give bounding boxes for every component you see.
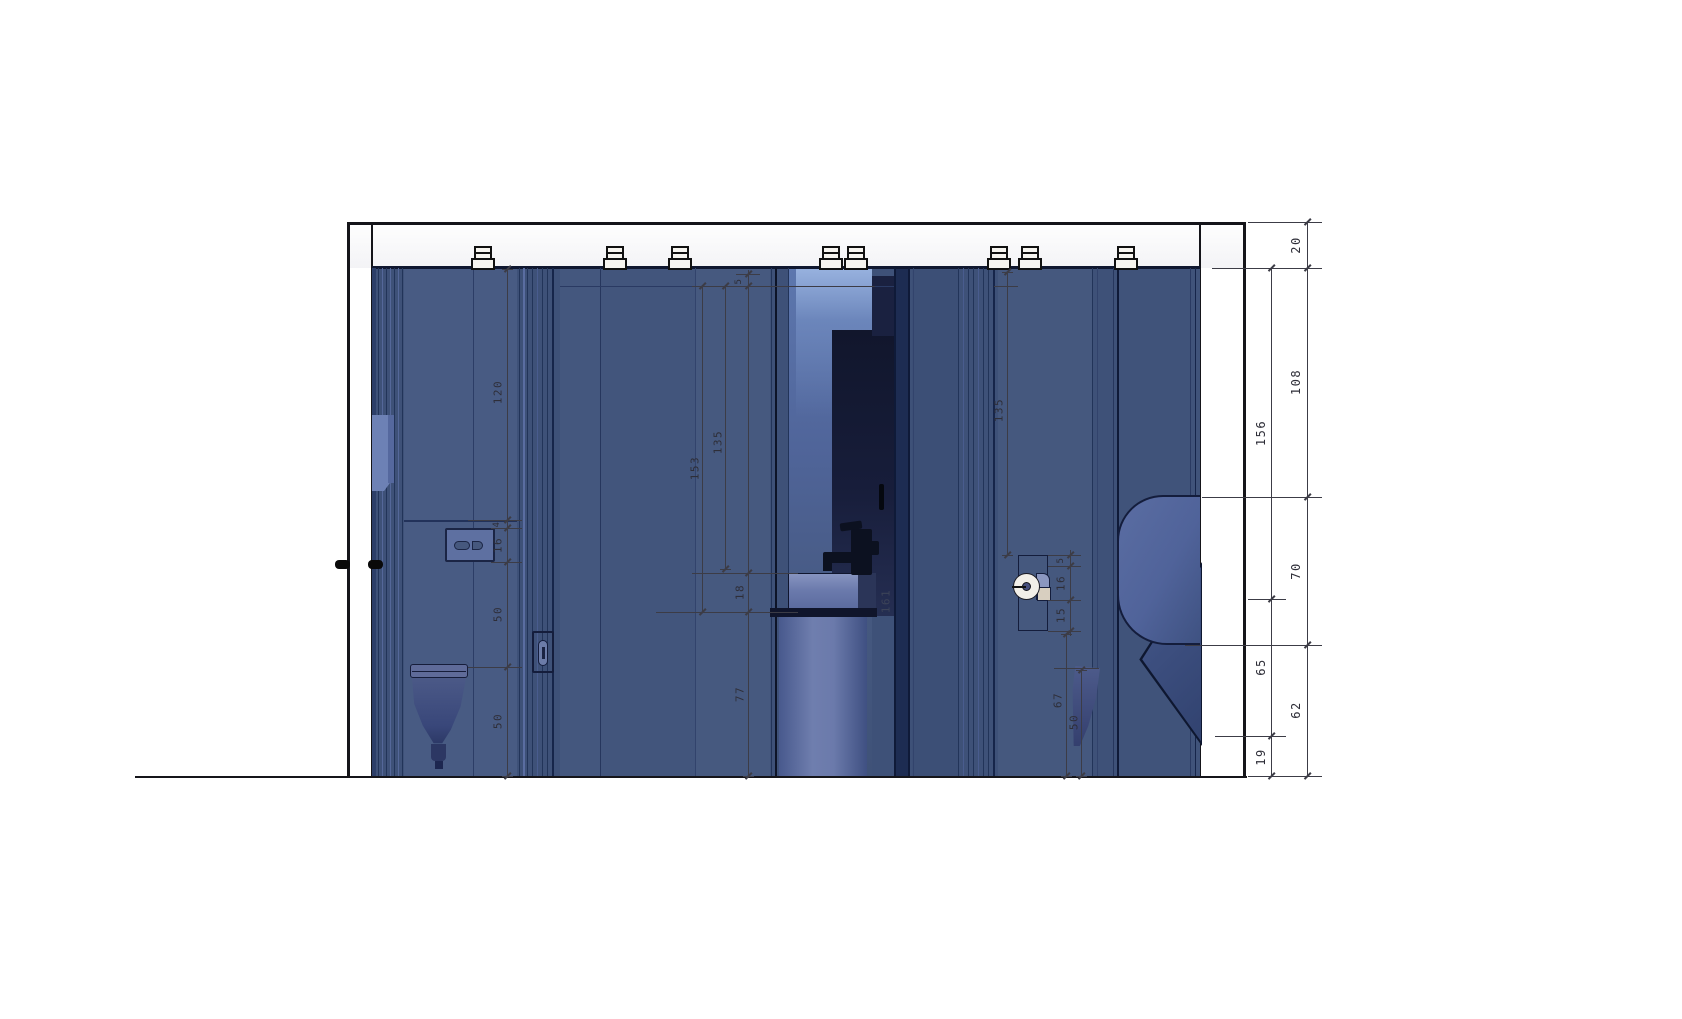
seam-line <box>390 268 391 776</box>
dim-ext <box>692 286 875 287</box>
dim-label: 19 <box>1254 748 1268 765</box>
seam-line <box>398 268 399 776</box>
stall-divider-seam <box>978 268 979 776</box>
dim-line-67 <box>1066 634 1067 776</box>
ceiling-spotlight-icon <box>844 246 866 268</box>
dim-ext <box>1054 668 1099 669</box>
stall-divider-seam <box>519 268 520 776</box>
panel-left-of-door <box>560 268 600 776</box>
middle-door-panel <box>600 268 695 776</box>
dim-ext <box>692 573 798 574</box>
seam-line <box>386 268 387 776</box>
dim-label: 50 <box>1068 714 1081 730</box>
ceiling-spotlight-icon <box>471 246 493 268</box>
mirror-edge-line <box>894 268 896 776</box>
dim-ext <box>1215 736 1286 737</box>
seam-line <box>378 268 379 776</box>
seam-line <box>382 268 383 776</box>
stall-divider-seam <box>983 268 984 776</box>
dim-ext <box>1202 497 1322 498</box>
seam-line <box>775 268 777 776</box>
flush-button-large <box>454 541 470 550</box>
stall-divider-seam <box>993 268 995 776</box>
panel-right-of-door <box>912 268 958 776</box>
ceiling-spotlight-icon <box>1114 246 1136 268</box>
seam-line <box>402 268 403 776</box>
ceiling-spotlight-icon <box>987 246 1009 268</box>
toilet-rim-line <box>412 671 466 672</box>
seam-line <box>771 268 772 776</box>
dim-label: 70 <box>1289 562 1303 579</box>
dim-label: 161 <box>880 589 893 613</box>
dim-label: 50 <box>492 606 505 622</box>
stall-divider-seam <box>527 268 528 776</box>
dim-ext <box>1248 776 1322 777</box>
dim-label: 16 <box>492 537 505 553</box>
seam-line <box>695 268 696 776</box>
door-handle-outer <box>335 560 350 569</box>
dim-ext <box>1048 566 1081 567</box>
stall-divider-seam <box>988 268 989 776</box>
stall-divider-seam <box>537 268 538 776</box>
dim-chain-outer <box>1307 222 1308 777</box>
dim-label: 135 <box>712 430 725 454</box>
middle-door-panel-2 <box>695 268 770 776</box>
right-wall-outer-line <box>1243 222 1246 777</box>
urinal <box>1117 495 1200 645</box>
stall-divider-seam <box>547 268 548 776</box>
ceiling-spotlight-icon <box>819 246 841 268</box>
stall-divider-seam <box>542 268 543 776</box>
stall-divider-seam <box>973 268 974 776</box>
dim-ext <box>1048 600 1081 601</box>
flush-button-small <box>472 541 483 550</box>
ceiling-line <box>372 266 1200 269</box>
stall-divider-seam <box>968 268 969 776</box>
toilet-foot <box>431 744 446 761</box>
dim-line-50-right <box>1081 670 1082 776</box>
dim-label: 156 <box>1254 420 1268 446</box>
seam-line <box>372 268 376 776</box>
dim-ext <box>468 667 522 668</box>
stall-divider-seam <box>958 268 959 776</box>
washbasin <box>788 573 868 611</box>
dim-ext <box>1185 645 1322 646</box>
dim-label: 18 <box>734 584 747 600</box>
toilet-paper-spindle <box>1012 586 1026 588</box>
stall-divider-seam <box>523 268 525 776</box>
dim-label: 5 <box>734 278 744 285</box>
washbasin-side-shade <box>858 573 876 611</box>
seam-line <box>913 268 914 776</box>
flush-plate <box>445 528 495 562</box>
dim-label: 135 <box>993 398 1006 422</box>
ceiling-spotlight-icon <box>603 246 625 268</box>
dim-label: 120 <box>492 380 505 404</box>
dim-label: 67 <box>1052 692 1065 708</box>
ceiling-spotlight-icon <box>1018 246 1040 268</box>
dim-line-135-mid <box>725 286 726 569</box>
dim-ext <box>736 274 760 275</box>
dim-line-mid-main <box>748 270 749 777</box>
dim-label: 4 <box>492 521 502 528</box>
dim-line-153 <box>702 286 703 612</box>
elevation-drawing-canvas: 120 4 16 50 50 5 153 135 18 161 77 135 5… <box>0 0 1682 1019</box>
dim-label: 153 <box>689 456 702 480</box>
dim-label: 62 <box>1289 701 1303 718</box>
dim-label: 77 <box>734 686 747 702</box>
stall-divider-seam <box>963 268 964 776</box>
pedestal <box>779 617 867 776</box>
dim-label: 108 <box>1289 369 1303 395</box>
seam-line <box>1113 268 1114 776</box>
dim-ext <box>1048 631 1081 632</box>
door-gap-dark-band <box>894 268 908 776</box>
dim-label: 50 <box>492 713 505 729</box>
dim-ext <box>491 528 522 529</box>
seam-line <box>394 268 395 776</box>
dim-label: 16 <box>1055 575 1068 591</box>
seam-line <box>600 268 601 776</box>
seam-line <box>908 268 910 776</box>
toilet-drain <box>435 761 443 769</box>
seam-line <box>473 268 474 776</box>
dim-ext <box>491 562 522 563</box>
faucet-nozzle <box>823 560 832 571</box>
seam-line <box>1117 268 1119 776</box>
door-handle-inner <box>368 560 383 569</box>
left-wall-outer-line <box>347 222 350 777</box>
dim-label: 20 <box>1289 236 1303 253</box>
dim-label: 15 <box>1055 607 1068 623</box>
stall-door-lock-slot <box>542 647 545 659</box>
stall-divider-seam <box>532 268 533 776</box>
dim-ext <box>1248 222 1322 223</box>
dim-ext <box>1248 599 1286 600</box>
door-edge-handle <box>879 484 884 510</box>
dim-chain-inner <box>1271 268 1272 777</box>
seam-line <box>1097 268 1098 776</box>
dim-label: 5 <box>1056 557 1066 564</box>
dim-label: 65 <box>1254 658 1268 675</box>
dim-ext <box>994 286 1018 287</box>
mirror-recess-upper <box>872 276 894 336</box>
faucet-side-knob <box>870 541 879 555</box>
dim-line-tp <box>1070 550 1071 636</box>
stall-divider-seam <box>552 268 554 776</box>
dim-ext <box>656 612 798 613</box>
ceiling-spotlight-icon <box>668 246 690 268</box>
dim-ext <box>1212 268 1322 269</box>
dim-line-135-right <box>1007 272 1008 555</box>
left-wall-light-panel-edge <box>388 415 394 483</box>
dim-line-left-stall <box>507 268 508 777</box>
